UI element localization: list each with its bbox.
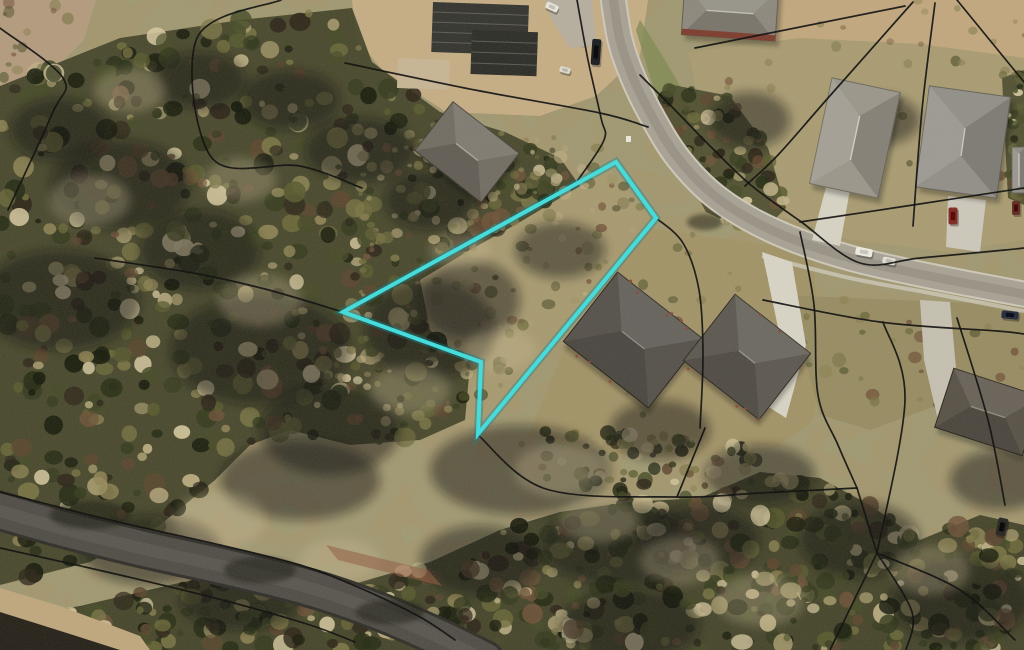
aerial-map-canvas bbox=[0, 0, 1024, 650]
photo-grain-overlay bbox=[0, 0, 1024, 650]
aerial-parcel-photo bbox=[0, 0, 1024, 650]
